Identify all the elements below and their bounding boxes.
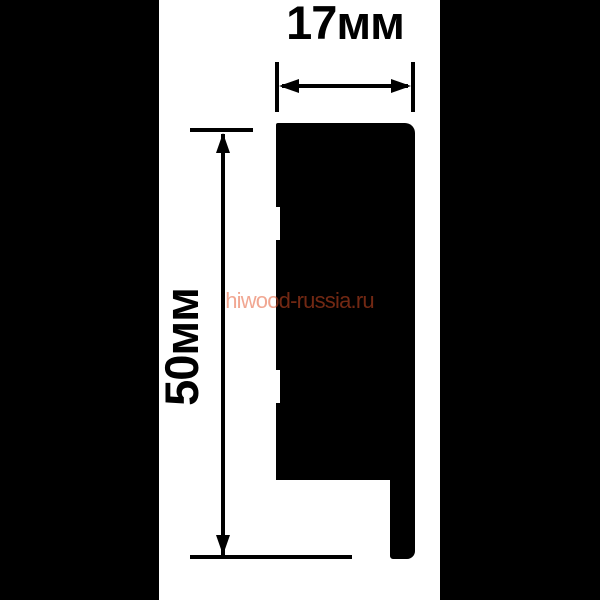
letterbox-right-bar xyxy=(440,0,600,600)
profile-cross-section-foot xyxy=(390,460,415,559)
clip-notch-lower xyxy=(276,370,280,403)
width-dimension-line xyxy=(282,84,408,88)
clip-notch-upper xyxy=(276,207,280,240)
height-dimension-line xyxy=(221,134,225,555)
arrowhead-up-icon xyxy=(216,133,230,153)
diagram-stage: 17мм 50мм hiwood-russia.ru xyxy=(0,0,600,600)
arrowhead-left-icon xyxy=(279,79,299,93)
floor-baseline xyxy=(190,555,352,559)
height-extension-tick-top xyxy=(190,128,253,132)
letterbox-left-bar xyxy=(0,0,159,600)
arrowhead-down-icon xyxy=(216,535,230,555)
width-extension-tick-right xyxy=(411,62,415,112)
height-dimension-label: 50мм xyxy=(157,267,207,427)
width-dimension-label: 17мм xyxy=(245,0,445,48)
arrowhead-right-icon xyxy=(391,79,411,93)
